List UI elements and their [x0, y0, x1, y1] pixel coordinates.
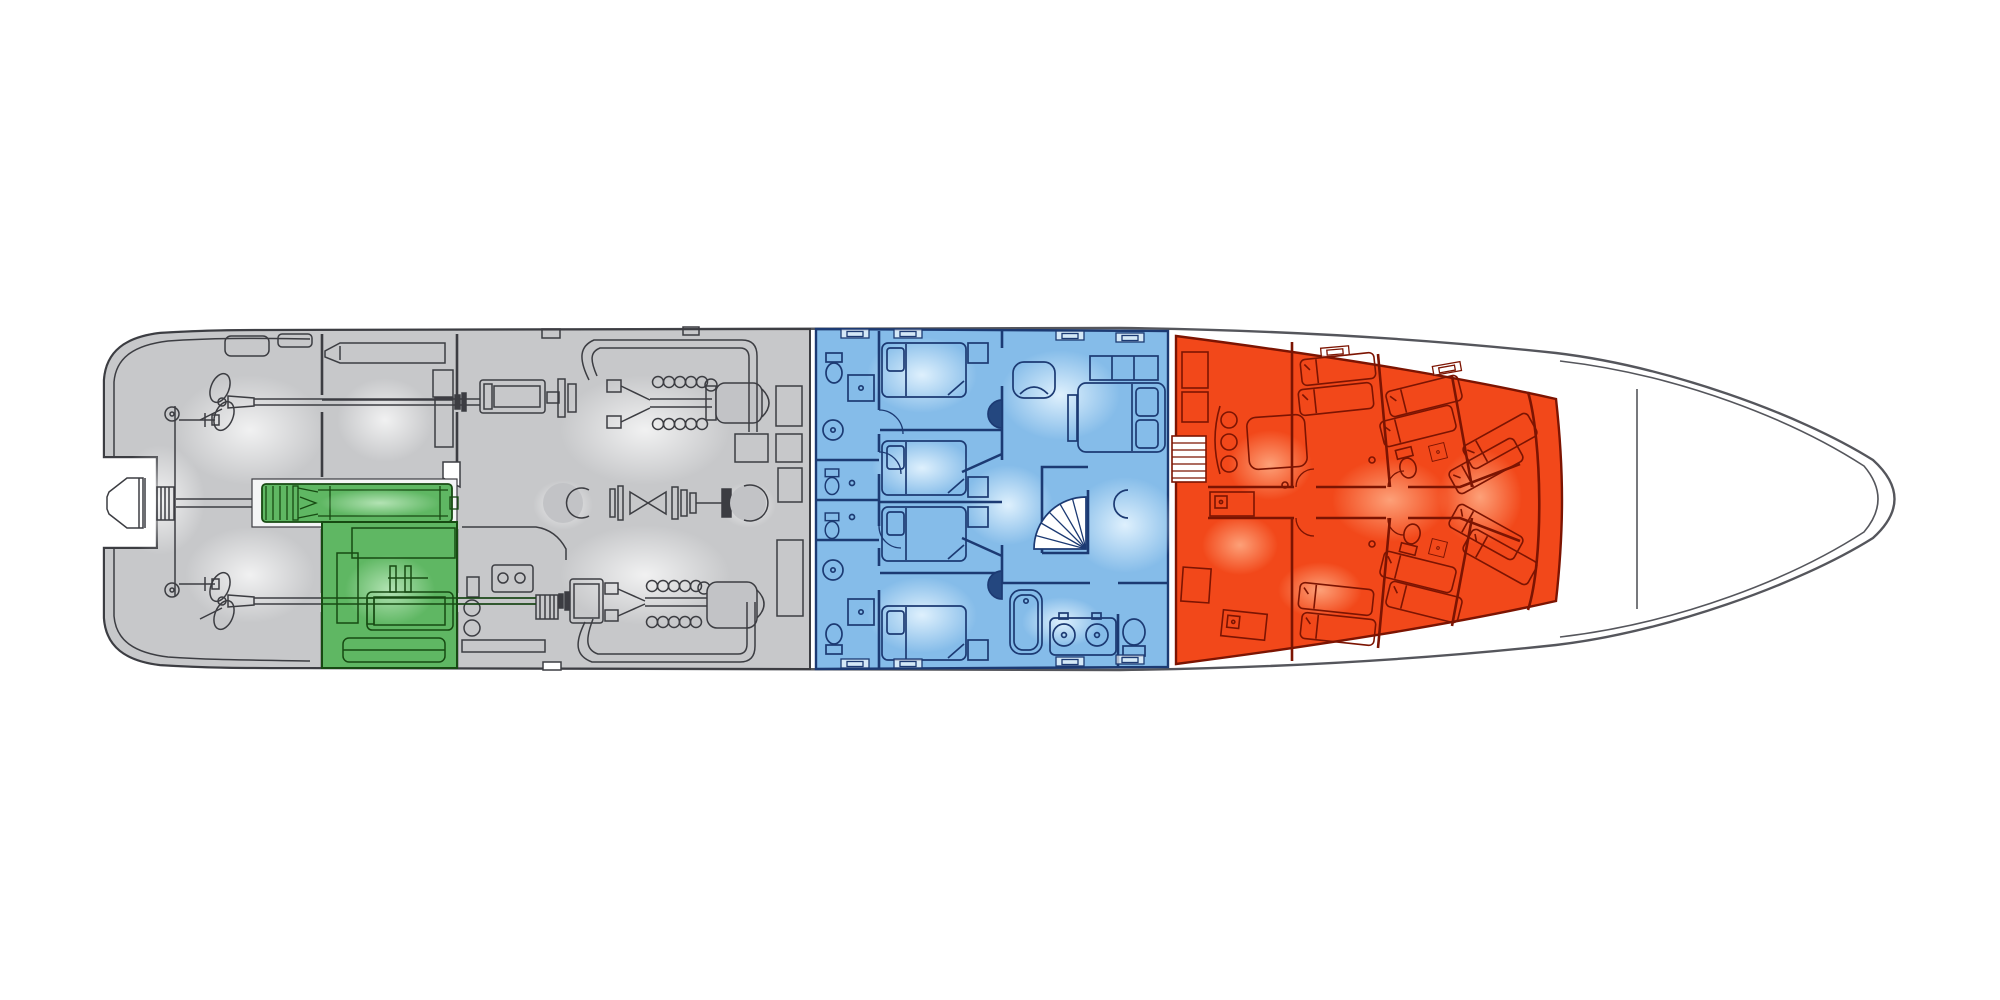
vent-hatch [543, 662, 561, 670]
deck-plan-canvas [0, 0, 2000, 1000]
crew-stairs-icon [1172, 436, 1206, 482]
yacht-deck-plan-svg [0, 0, 2000, 1000]
